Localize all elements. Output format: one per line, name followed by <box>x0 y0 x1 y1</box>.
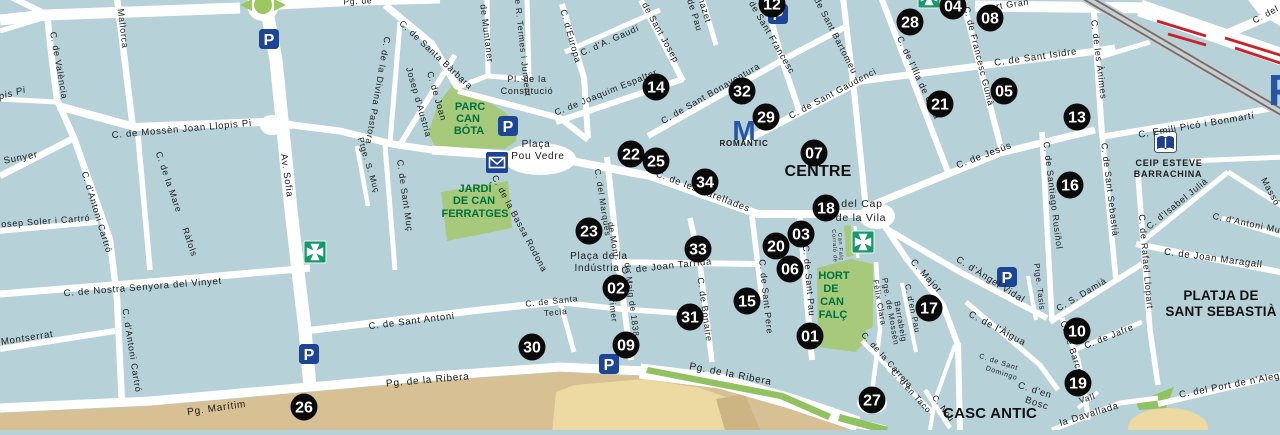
svg-text:DE: DE <box>823 283 838 295</box>
svg-text:13: 13 <box>1068 110 1086 127</box>
svg-text:de la Vila: de la Vila <box>836 212 887 224</box>
svg-text:32: 32 <box>733 84 751 101</box>
svg-text:01: 01 <box>801 329 819 346</box>
svg-text:del Cap: del Cap <box>841 198 882 210</box>
svg-text:21: 21 <box>931 97 949 114</box>
svg-text:34: 34 <box>696 175 714 192</box>
svg-text:P: P <box>304 347 315 364</box>
svg-text:05: 05 <box>995 84 1013 101</box>
svg-text:CASC ANTIC: CASC ANTIC <box>943 405 1037 422</box>
svg-text:02: 02 <box>607 281 625 298</box>
svg-text:25: 25 <box>647 154 665 171</box>
svg-text:Plaça: Plaça <box>522 139 551 150</box>
svg-text:BARRACHINA: BARRACHINA <box>1134 169 1203 179</box>
svg-text:ROMÀNTIC: ROMÀNTIC <box>719 139 768 148</box>
svg-text:HORT: HORT <box>818 270 849 282</box>
svg-text:10: 10 <box>1068 324 1086 341</box>
svg-text:BÓTA: BÓTA <box>454 124 484 137</box>
svg-text:26: 26 <box>295 400 313 417</box>
svg-text:33: 33 <box>689 242 707 259</box>
svg-text:P: P <box>604 357 615 374</box>
svg-text:19: 19 <box>1069 376 1087 393</box>
svg-text:23: 23 <box>580 224 598 241</box>
svg-text:30: 30 <box>523 340 541 357</box>
svg-text:07: 07 <box>805 146 823 163</box>
svg-text:06: 06 <box>781 262 799 279</box>
svg-text:20: 20 <box>767 239 785 256</box>
svg-text:P: P <box>503 119 514 136</box>
svg-text:PLATJA DE: PLATJA DE <box>1183 288 1258 303</box>
svg-text:17: 17 <box>920 301 938 318</box>
svg-text:CAN: CAN <box>820 296 844 308</box>
svg-text:31: 31 <box>681 310 699 327</box>
svg-text:Constitució: Constitució <box>501 86 554 96</box>
svg-text:FALÇ: FALÇ <box>819 309 848 321</box>
svg-text:CEIP ESTEVE: CEIP ESTEVE <box>1135 158 1202 168</box>
svg-text:14: 14 <box>647 80 665 97</box>
svg-text:FERRATGES: FERRATGES <box>441 208 508 220</box>
svg-text:27: 27 <box>863 393 881 410</box>
svg-text:03: 03 <box>792 227 810 244</box>
svg-text:Indústria: Indústria <box>574 263 619 274</box>
svg-text:DE CAN: DE CAN <box>453 195 495 207</box>
svg-text:PARC: PARC <box>455 101 485 113</box>
svg-text:SANT SEBASTIÀ: SANT SEBASTIÀ <box>1165 304 1276 319</box>
svg-text:CAN: CAN <box>456 113 480 125</box>
svg-text:28: 28 <box>901 15 919 32</box>
svg-text:JARDÍ: JARDÍ <box>458 182 492 195</box>
svg-text:22: 22 <box>622 147 640 164</box>
svg-text:08: 08 <box>981 11 999 28</box>
svg-text:Pl. de la: Pl. de la <box>507 74 546 84</box>
svg-text:18: 18 <box>817 201 835 218</box>
svg-text:04: 04 <box>944 0 962 16</box>
svg-text:12: 12 <box>763 0 781 14</box>
svg-text:16: 16 <box>1061 178 1079 195</box>
svg-text:P: P <box>1268 66 1280 115</box>
svg-text:09: 09 <box>617 338 635 355</box>
svg-text:Pou Vedre: Pou Vedre <box>511 151 564 162</box>
svg-text:15: 15 <box>738 294 756 311</box>
svg-text:29: 29 <box>757 110 775 127</box>
svg-text:P: P <box>264 32 275 49</box>
